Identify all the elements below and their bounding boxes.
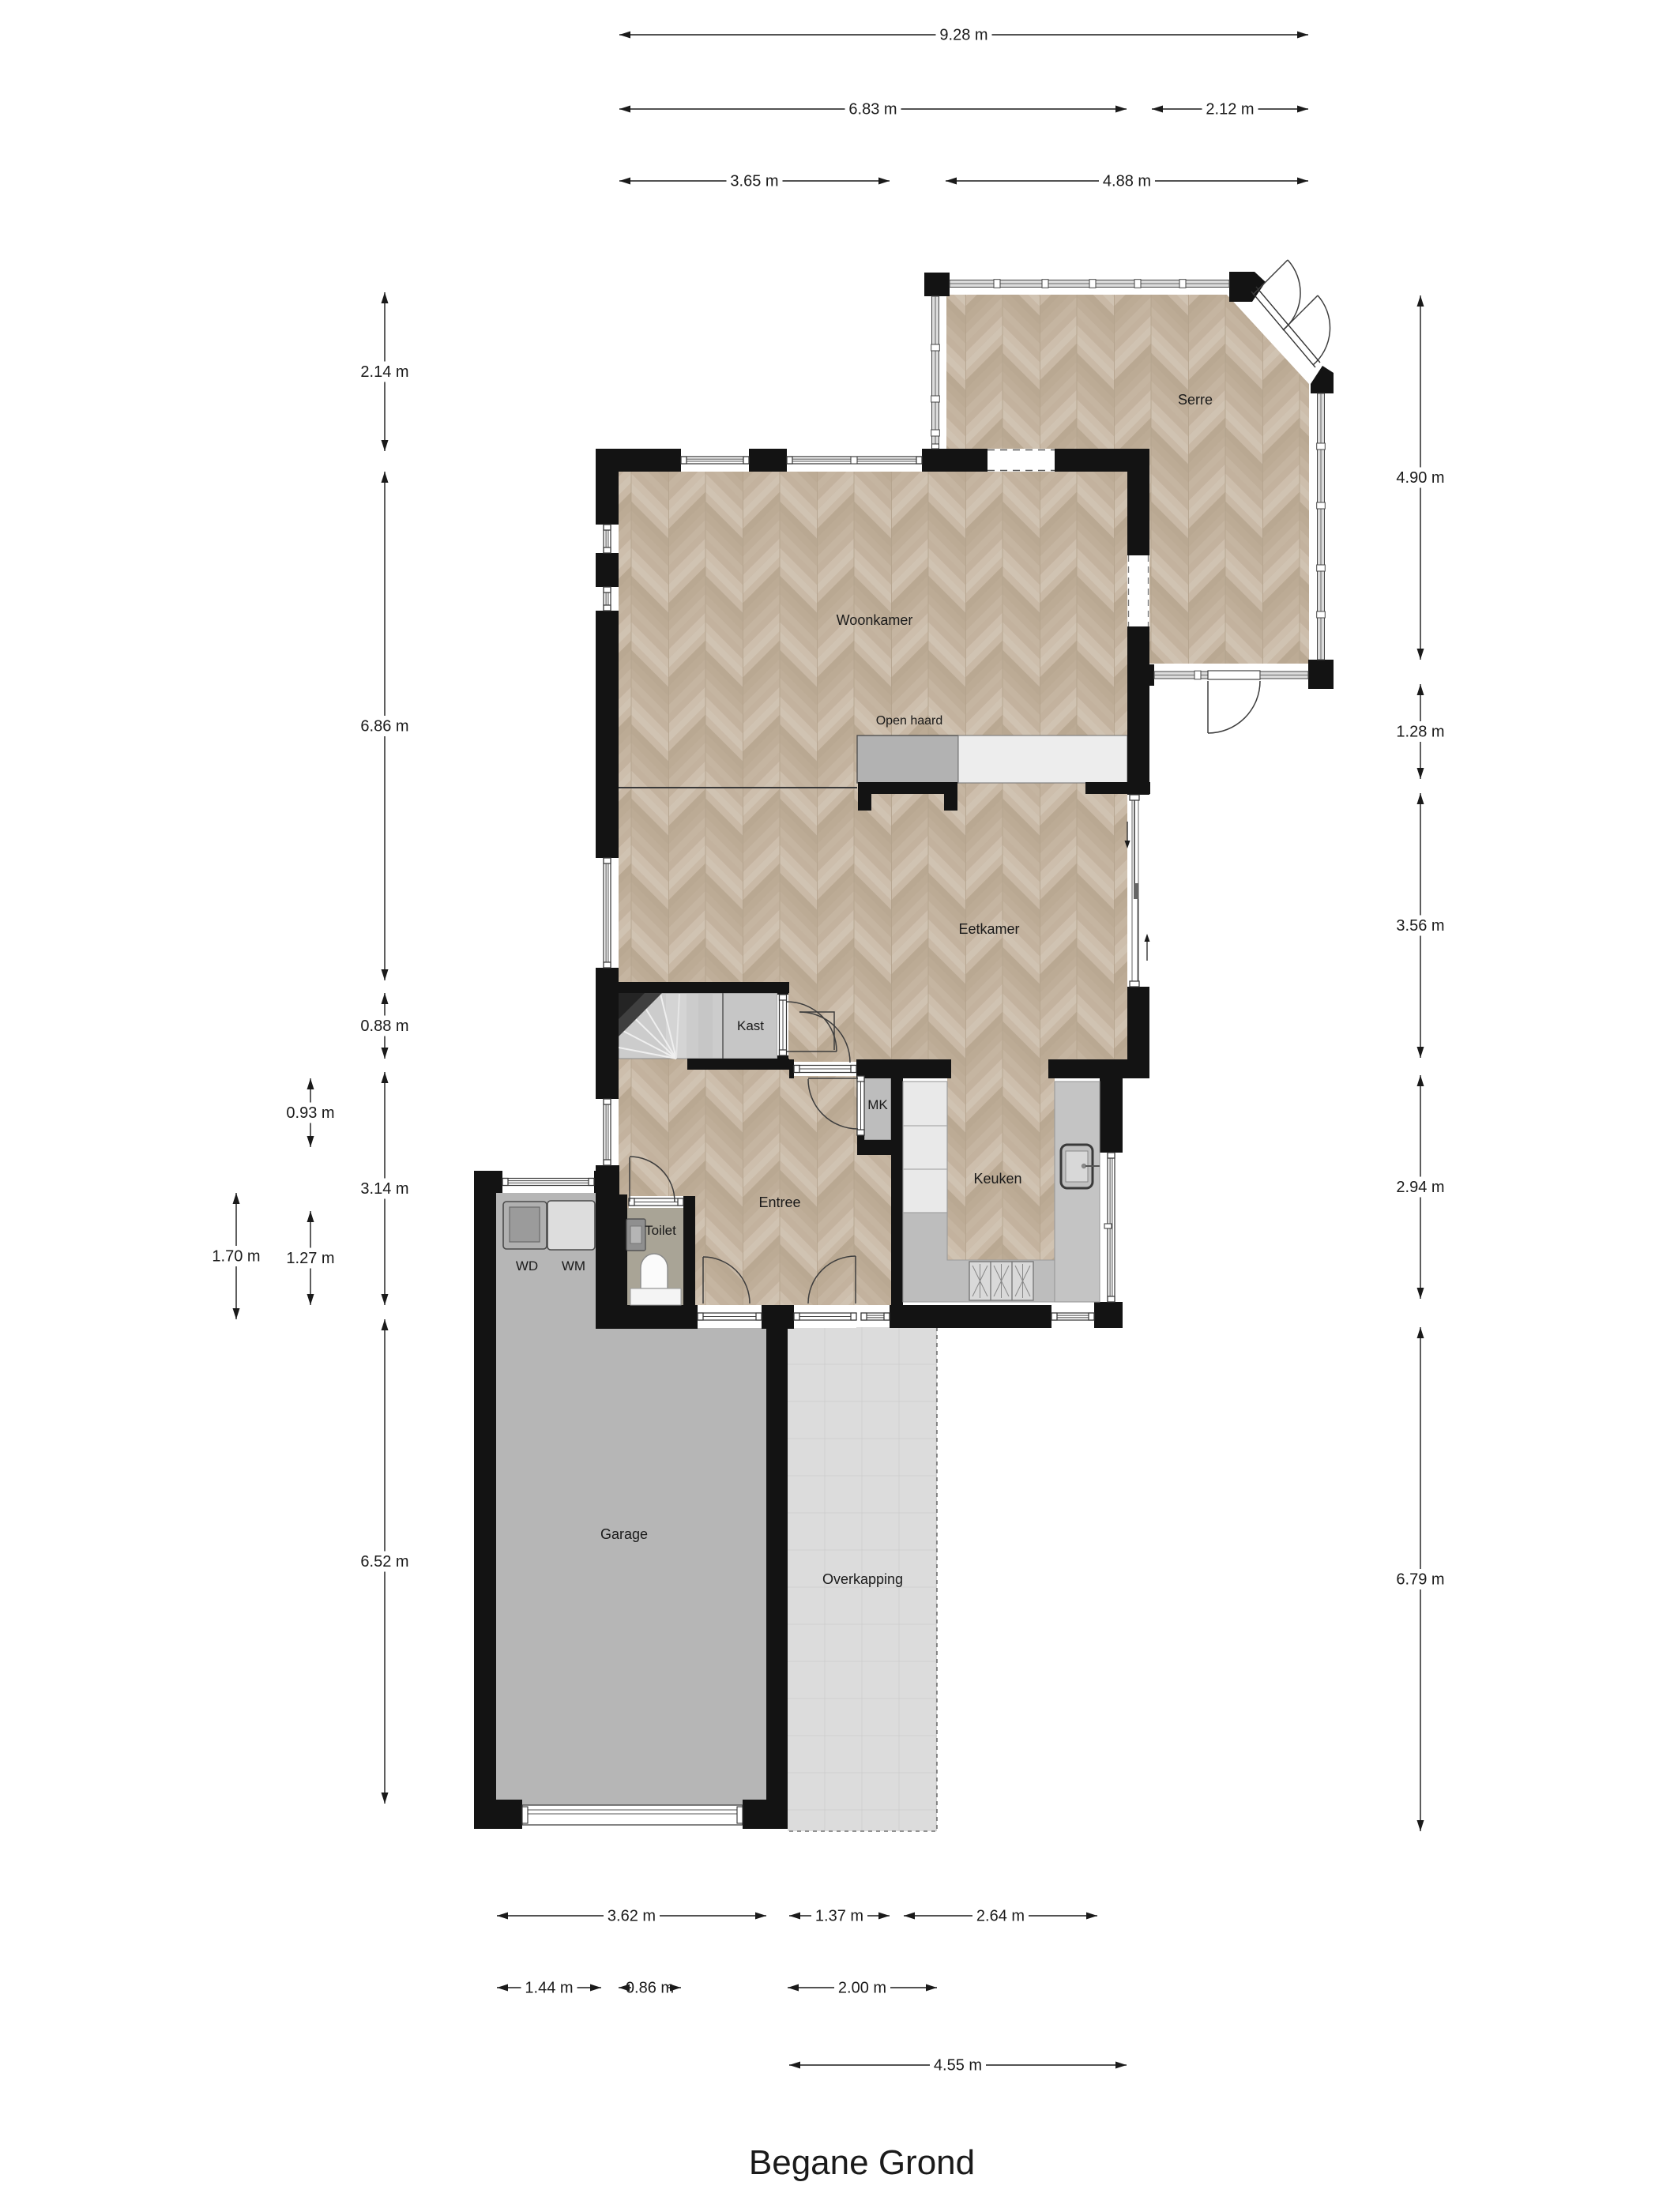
svg-text:Garage: Garage bbox=[600, 1526, 648, 1542]
svg-text:0.88 m: 0.88 m bbox=[360, 1018, 408, 1035]
svg-text:Serre: Serre bbox=[1178, 392, 1213, 408]
svg-text:1.27 m: 1.27 m bbox=[286, 1250, 334, 1267]
svg-text:6.52 m: 6.52 m bbox=[360, 1553, 408, 1571]
svg-text:0.93 m: 0.93 m bbox=[286, 1104, 334, 1122]
svg-text:6.79 m: 6.79 m bbox=[1396, 1571, 1444, 1589]
svg-text:Woonkamer: Woonkamer bbox=[837, 612, 913, 628]
svg-text:Keuken: Keuken bbox=[973, 1171, 1021, 1187]
svg-text:1.44 m: 1.44 m bbox=[525, 1980, 573, 1997]
svg-text:Overkapping: Overkapping bbox=[822, 1571, 903, 1587]
svg-text:1.37 m: 1.37 m bbox=[815, 1908, 863, 1925]
svg-text:3.65 m: 3.65 m bbox=[730, 173, 778, 190]
svg-text:3.14 m: 3.14 m bbox=[360, 1180, 408, 1198]
svg-text:4.88 m: 4.88 m bbox=[1103, 173, 1151, 190]
svg-text:4.55 m: 4.55 m bbox=[934, 2057, 982, 2075]
svg-text:4.90 m: 4.90 m bbox=[1396, 469, 1444, 487]
svg-text:9.28 m: 9.28 m bbox=[939, 27, 987, 44]
svg-text:Kast: Kast bbox=[737, 1018, 764, 1033]
svg-text:2.14 m: 2.14 m bbox=[360, 363, 408, 381]
svg-text:Eetkamer: Eetkamer bbox=[958, 921, 1019, 937]
svg-text:Begane Grond: Begane Grond bbox=[749, 2143, 975, 2182]
svg-text:Entree: Entree bbox=[758, 1194, 800, 1210]
svg-text:2.64 m: 2.64 m bbox=[976, 1908, 1025, 1925]
svg-text:1.28 m: 1.28 m bbox=[1396, 724, 1444, 741]
svg-text:6.86 m: 6.86 m bbox=[360, 718, 408, 735]
svg-text:2.12 m: 2.12 m bbox=[1206, 101, 1254, 118]
svg-text:2.00 m: 2.00 m bbox=[838, 1980, 886, 1997]
svg-text:WM: WM bbox=[562, 1258, 585, 1273]
svg-text:WD: WD bbox=[516, 1258, 538, 1273]
svg-text:Toilet: Toilet bbox=[645, 1223, 676, 1238]
svg-text:2.94 m: 2.94 m bbox=[1396, 1179, 1444, 1196]
svg-text:0.86 m: 0.86 m bbox=[626, 1980, 674, 1997]
svg-text:3.56 m: 3.56 m bbox=[1396, 917, 1444, 935]
svg-text:Open haard: Open haard bbox=[876, 714, 943, 728]
svg-text:1.70 m: 1.70 m bbox=[212, 1248, 260, 1266]
svg-text:MK: MK bbox=[867, 1097, 888, 1112]
svg-text:6.83 m: 6.83 m bbox=[848, 101, 897, 118]
svg-text:3.62 m: 3.62 m bbox=[608, 1908, 656, 1925]
